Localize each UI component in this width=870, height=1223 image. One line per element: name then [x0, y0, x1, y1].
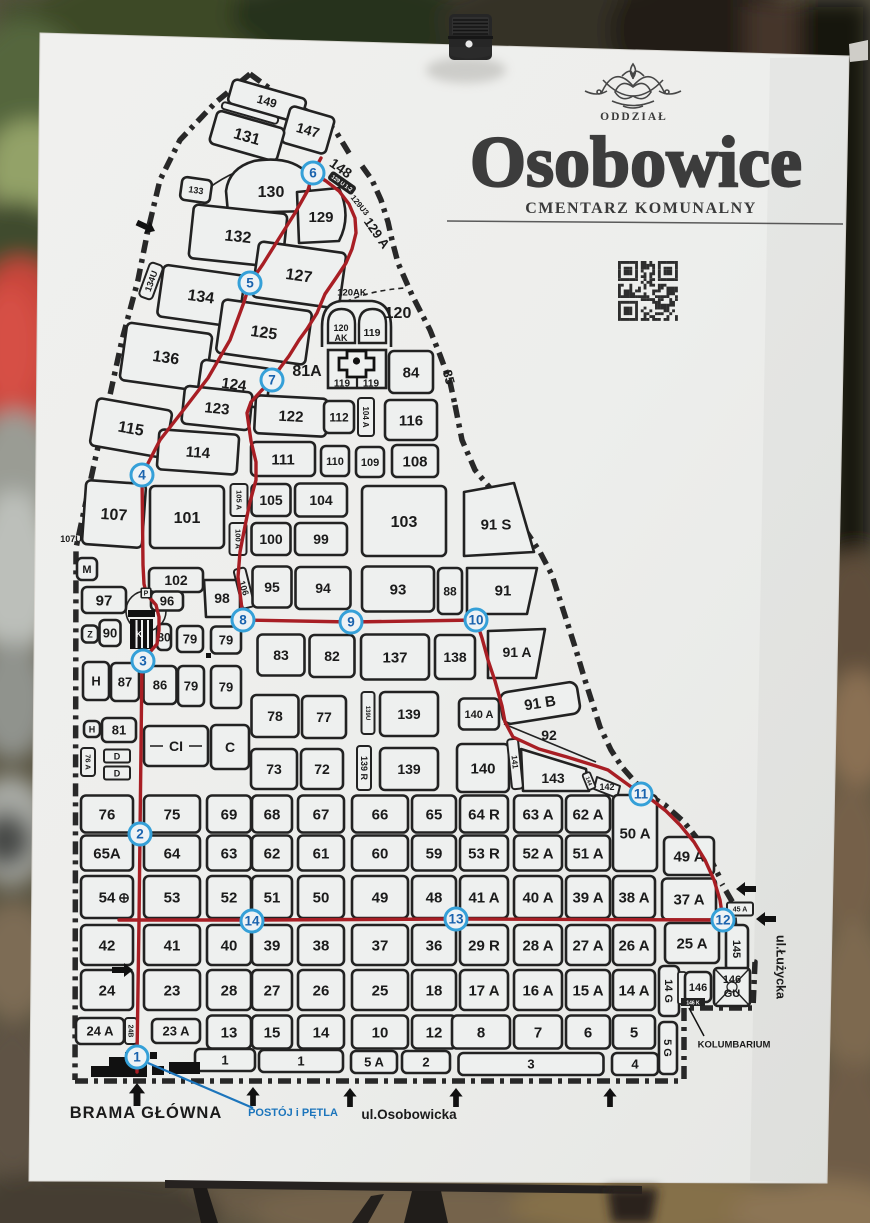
svg-text:42: 42 [99, 937, 116, 954]
svg-text:79: 79 [219, 633, 233, 648]
svg-text:51 A: 51 A [572, 845, 603, 862]
svg-text:6: 6 [309, 166, 317, 181]
svg-text:50 A: 50 A [619, 825, 650, 842]
svg-text:39: 39 [264, 937, 281, 954]
svg-text:15 A: 15 A [572, 982, 603, 999]
svg-text:88: 88 [443, 584, 457, 598]
svg-text:28 A: 28 A [522, 937, 553, 954]
svg-text:119: 119 [363, 379, 380, 390]
svg-text:48: 48 [426, 889, 443, 906]
svg-text:23 A: 23 A [163, 1024, 191, 1039]
svg-text:5 A: 5 A [364, 1055, 384, 1070]
svg-text:107U: 107U [60, 534, 82, 544]
svg-text:119: 119 [334, 379, 351, 390]
svg-text:40 A: 40 A [522, 889, 553, 906]
svg-text:120: 120 [385, 305, 412, 322]
svg-text:23: 23 [164, 982, 181, 999]
svg-text:140: 140 [470, 760, 495, 777]
svg-text:7: 7 [268, 373, 276, 388]
svg-text:77: 77 [316, 709, 332, 725]
svg-text:4: 4 [631, 1057, 639, 1072]
svg-text:81: 81 [112, 723, 126, 738]
svg-text:72: 72 [314, 761, 330, 777]
svg-text:4: 4 [138, 468, 146, 483]
svg-text:41: 41 [164, 937, 181, 954]
svg-text:27: 27 [264, 982, 281, 999]
svg-text:99: 99 [313, 531, 329, 547]
svg-text:38 A: 38 A [618, 889, 649, 906]
svg-text:139: 139 [397, 706, 421, 722]
svg-text:10: 10 [372, 1024, 389, 1041]
svg-text:100: 100 [259, 531, 283, 547]
svg-text:65A: 65A [93, 845, 121, 862]
svg-text:138: 138 [443, 649, 467, 665]
svg-text:143: 143 [541, 770, 565, 786]
svg-text:123: 123 [204, 399, 231, 419]
svg-text:92: 92 [541, 727, 557, 743]
svg-text:17 A: 17 A [468, 982, 499, 999]
svg-text:63: 63 [221, 845, 238, 862]
svg-text:K: K [136, 630, 142, 639]
svg-text:65: 65 [426, 806, 443, 823]
svg-text:P: P [144, 591, 149, 598]
svg-text:114: 114 [185, 444, 211, 463]
svg-text:52 A: 52 A [522, 845, 553, 862]
svg-text:14: 14 [244, 914, 260, 929]
svg-text:94: 94 [315, 580, 331, 596]
svg-text:8: 8 [239, 613, 247, 628]
svg-text:18: 18 [426, 982, 443, 999]
svg-text:129: 129 [308, 209, 333, 226]
svg-text:5: 5 [246, 276, 254, 291]
svg-text:24 A: 24 A [87, 1024, 115, 1039]
svg-text:69: 69 [221, 806, 238, 823]
svg-text:5 G: 5 G [661, 1039, 673, 1057]
svg-text:146 K: 146 K [686, 1001, 700, 1007]
svg-text:39 A: 39 A [572, 889, 603, 906]
svg-text:50: 50 [313, 889, 330, 906]
svg-text:37 A: 37 A [673, 891, 704, 908]
svg-text:103: 103 [391, 514, 418, 531]
svg-text:H: H [89, 724, 96, 734]
svg-text:76 A: 76 A [83, 754, 92, 770]
svg-text:141: 141 [509, 755, 519, 770]
svg-text:Osobowice: Osobowice [470, 122, 802, 202]
svg-text:112: 112 [329, 410, 349, 424]
svg-text:13: 13 [221, 1024, 238, 1041]
svg-text:64: 64 [164, 845, 181, 862]
svg-text:132: 132 [224, 227, 252, 247]
svg-text:BRAMA GŁÓWNA: BRAMA GŁÓWNA [70, 1103, 223, 1122]
svg-text:105 A: 105 A [234, 490, 243, 510]
svg-text:M: M [82, 564, 91, 576]
svg-text:105: 105 [259, 492, 283, 508]
svg-text:25 A: 25 A [676, 935, 707, 952]
svg-text:GU: GU [724, 988, 741, 1000]
svg-text:90: 90 [103, 626, 117, 641]
svg-text:64 R: 64 R [468, 806, 500, 823]
svg-text:C: C [225, 739, 235, 755]
svg-text:53 R: 53 R [468, 845, 500, 862]
svg-text:140 A: 140 A [465, 709, 494, 721]
svg-text:29 R: 29 R [468, 937, 500, 954]
svg-text:95: 95 [264, 579, 280, 595]
svg-text:60: 60 [372, 845, 389, 862]
svg-text:1: 1 [297, 1054, 304, 1069]
svg-text:51: 51 [264, 889, 281, 906]
svg-text:14 A: 14 A [618, 982, 649, 999]
svg-text:12: 12 [715, 913, 730, 928]
svg-text:10: 10 [468, 613, 483, 628]
svg-text:139U: 139U [364, 706, 370, 720]
svg-text:D: D [114, 751, 121, 761]
svg-text:15: 15 [264, 1024, 281, 1041]
svg-text:49: 49 [372, 889, 389, 906]
svg-text:97: 97 [96, 592, 113, 609]
svg-text:14 G: 14 G [662, 979, 674, 1003]
svg-text:104: 104 [309, 492, 333, 508]
svg-text:110: 110 [326, 456, 344, 468]
svg-text:6: 6 [584, 1024, 592, 1041]
svg-text:91 A: 91 A [502, 644, 531, 660]
svg-text:7: 7 [534, 1024, 542, 1041]
svg-text:145: 145 [730, 940, 742, 958]
svg-text:62: 62 [264, 845, 281, 862]
svg-text:40: 40 [221, 937, 238, 954]
svg-text:12: 12 [426, 1024, 443, 1041]
svg-text:130: 130 [258, 184, 285, 201]
svg-text:36: 36 [426, 937, 443, 954]
svg-text:37: 37 [372, 937, 389, 954]
svg-text:9: 9 [347, 615, 355, 630]
svg-text:38: 38 [313, 937, 330, 954]
svg-text:5: 5 [630, 1024, 638, 1041]
svg-text:76: 76 [99, 806, 116, 823]
svg-text:93: 93 [390, 581, 407, 598]
svg-text:2: 2 [422, 1055, 429, 1070]
svg-text:26 A: 26 A [618, 937, 649, 954]
svg-text:CMENTARZ KOMUNALNY: CMENTARZ KOMUNALNY [525, 200, 757, 217]
svg-text:AK: AK [335, 333, 348, 343]
svg-text:139 R: 139 R [359, 756, 369, 781]
svg-text:24B: 24B [126, 1025, 133, 1038]
svg-text:53: 53 [164, 889, 181, 906]
svg-text:122: 122 [278, 408, 304, 426]
svg-text:1: 1 [133, 1050, 141, 1065]
svg-text:63 A: 63 A [522, 806, 553, 823]
svg-text:133: 133 [188, 184, 204, 196]
svg-text:79: 79 [184, 679, 198, 694]
svg-text:27 A: 27 A [572, 937, 603, 954]
svg-text:79: 79 [183, 632, 197, 647]
svg-text:107: 107 [100, 506, 128, 525]
svg-text:91 S: 91 S [481, 516, 512, 533]
svg-text:14: 14 [313, 1024, 330, 1041]
svg-text:16 A: 16 A [522, 982, 553, 999]
svg-text:CI: CI [169, 738, 183, 754]
svg-text:87: 87 [118, 675, 132, 690]
svg-text:102: 102 [164, 572, 188, 588]
svg-text:Z: Z [87, 629, 93, 639]
svg-text:1: 1 [221, 1053, 228, 1068]
svg-text:146: 146 [689, 982, 707, 994]
svg-text:83: 83 [273, 647, 289, 663]
svg-text:120: 120 [333, 323, 348, 333]
svg-text:13: 13 [448, 912, 464, 927]
svg-text:79: 79 [219, 680, 233, 695]
svg-text:26: 26 [313, 982, 330, 999]
svg-text:84: 84 [403, 364, 420, 381]
svg-text:59: 59 [426, 845, 443, 862]
svg-text:111: 111 [271, 451, 294, 468]
svg-text:75: 75 [164, 806, 181, 823]
svg-text:96: 96 [160, 594, 174, 609]
svg-text:41 A: 41 A [468, 889, 499, 906]
svg-text:108: 108 [402, 453, 427, 470]
svg-text:73: 73 [266, 761, 282, 777]
svg-text:137: 137 [382, 649, 407, 666]
svg-text:146: 146 [723, 974, 741, 986]
svg-text:81A: 81A [292, 363, 322, 380]
svg-text:28: 28 [221, 982, 238, 999]
svg-text:62 A: 62 A [572, 806, 603, 823]
svg-text:54: 54 [99, 889, 116, 906]
svg-text:139: 139 [397, 761, 421, 777]
svg-text:142: 142 [599, 782, 614, 792]
svg-text:116: 116 [399, 412, 423, 429]
svg-text:67: 67 [313, 806, 330, 823]
svg-text:109: 109 [361, 457, 379, 469]
svg-text:8: 8 [477, 1024, 485, 1041]
svg-text:25: 25 [372, 982, 389, 999]
svg-text:119: 119 [364, 327, 381, 339]
svg-text:78: 78 [267, 708, 283, 724]
svg-text:ul.Osobowicka: ul.Osobowicka [361, 1107, 457, 1122]
svg-text:120AK: 120AK [337, 287, 367, 298]
svg-text:45 A: 45 A [733, 907, 748, 914]
svg-text:2: 2 [136, 827, 144, 842]
svg-text:101: 101 [174, 510, 201, 527]
svg-text:24: 24 [99, 982, 116, 999]
svg-text:86: 86 [153, 678, 167, 693]
svg-text:68: 68 [264, 806, 281, 823]
svg-text:66: 66 [372, 806, 389, 823]
svg-text:POSTÓJ i PĘTLA: POSTÓJ i PĘTLA [248, 1106, 338, 1119]
svg-text:3: 3 [139, 654, 147, 669]
svg-text:98: 98 [214, 590, 230, 606]
svg-text:61: 61 [313, 845, 330, 862]
svg-text:82: 82 [324, 648, 340, 664]
svg-text:104 A: 104 A [361, 406, 370, 427]
svg-text:52: 52 [221, 889, 238, 906]
svg-text:11: 11 [634, 787, 649, 802]
svg-text:3: 3 [527, 1057, 534, 1072]
svg-text:H: H [91, 674, 100, 689]
svg-text:91: 91 [495, 582, 512, 599]
svg-text:D: D [114, 768, 121, 778]
